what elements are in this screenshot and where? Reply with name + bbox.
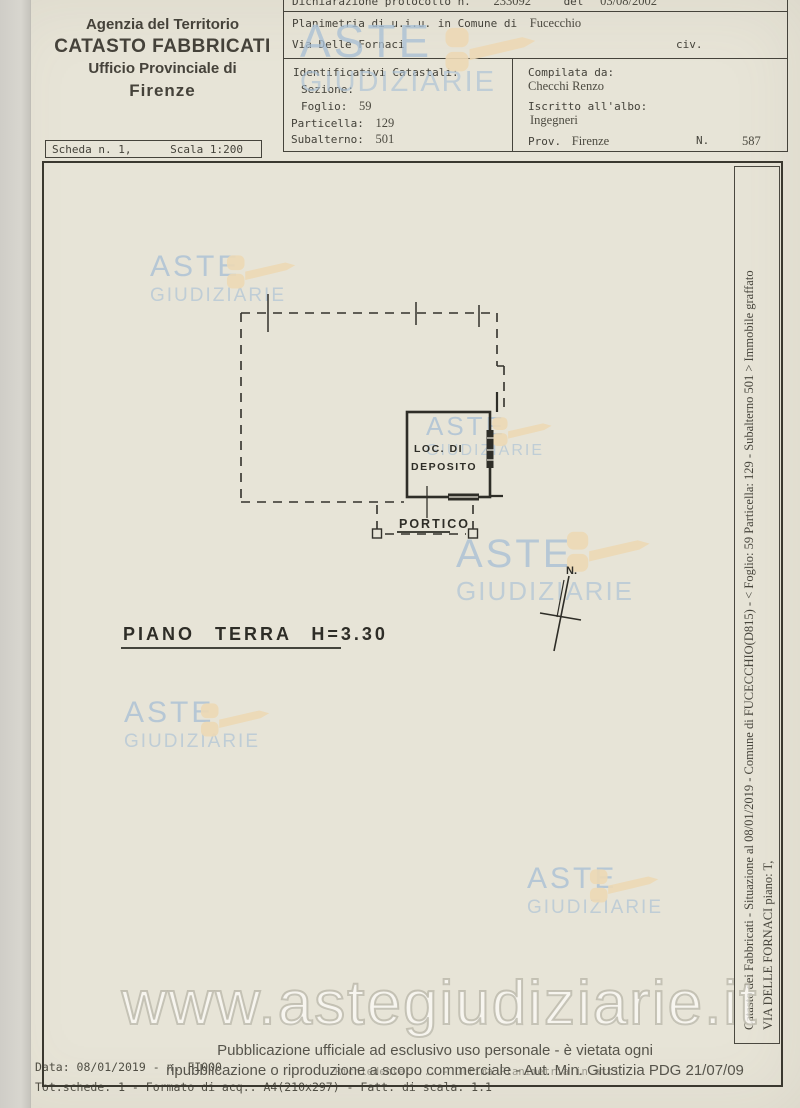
albo-label: Iscritto all'albo: (528, 100, 647, 113)
agency-line1: Agenzia del Territorio (40, 14, 285, 35)
civ-label: civ. (676, 38, 703, 51)
footer-official-line1: Pubblicazione ufficiale ad esclusivo uso… (217, 1042, 653, 1059)
compilata-title: Compilata da: (528, 66, 614, 79)
agency-line4: Firenze (40, 80, 285, 102)
particella-label: Particella: (291, 117, 364, 130)
foglio-label: Foglio: (301, 100, 347, 113)
side-note-line2: VIA DELLE FORNACI piano: T, (759, 166, 778, 1030)
room-window-bottom (448, 494, 479, 501)
declaration-label: Dichiarazione protocollo n. (292, 0, 471, 8)
portico-column-left (373, 529, 382, 538)
gavel-icon (587, 868, 659, 906)
floor-label: PIANO TERRA H=3.30 (123, 624, 388, 644)
agency-header: Agenzia del Territorio CATASTO FABBRICAT… (40, 14, 285, 102)
prov-row: Prov. Firenze (528, 134, 609, 149)
table-divider-1 (284, 11, 787, 12)
particella-value: 129 (375, 116, 394, 130)
url-watermark: www.astegiudiziarie.it (122, 968, 759, 1039)
scheda-box: Scheda n. 1, Scala 1:200 (45, 140, 262, 158)
room-label-line2: DEPOSITO (411, 461, 477, 473)
declaration-date: 03/08/2002 (600, 0, 657, 8)
agency-line3: Ufficio Provinciale di (40, 58, 285, 80)
label-underlines (121, 532, 450, 648)
gavel-icon (224, 254, 296, 292)
side-note-line1: Catasto dei Fabbricati - Situazione al 0… (740, 166, 759, 1030)
gavel-icon (564, 530, 650, 576)
gavel-icon (198, 702, 270, 740)
prov-value: Firenze (572, 134, 609, 148)
portico-label: PORTICO (399, 517, 470, 531)
n-value: 587 (742, 134, 761, 149)
foglio-value: 59 (359, 99, 372, 113)
scheda-number: Scheda n. 1, (52, 143, 131, 156)
gavel-icon (442, 26, 536, 76)
gavel-icon (490, 416, 552, 449)
floor-plan-drawing: N. LOC. DI DEPOSITO PORTICO PIANO TERRA … (0, 0, 800, 1108)
scala-value: Scala 1:200 (170, 143, 243, 156)
declaration-del: del (564, 0, 584, 8)
watermark-text-giudiziarie: GIUDIZIARIE (456, 578, 634, 604)
declaration-row: Dichiarazione protocollo n. 233092 del 0… (292, 0, 657, 9)
declaration-number: 233092 (493, 0, 531, 8)
footer-official-line2: ripubblicazione o riproduzione a scopo c… (166, 1062, 744, 1079)
agency-line2: CATASTO FABBRICATI (40, 35, 285, 58)
side-note-rotated: Catasto dei Fabbricati - Situazione al 0… (734, 166, 780, 1044)
subalterno-label: Subalterno: (291, 133, 364, 146)
comune-value: Fucecchio (530, 16, 581, 30)
n-label: N. (696, 134, 709, 147)
footer-tot-line: Tot.schede: 1 - Formato di acq.: A4(210x… (35, 1080, 492, 1094)
albo-value: Ingegneri (530, 113, 578, 128)
prov-label: Prov. (528, 135, 561, 148)
subalterno-value: 501 (375, 132, 394, 146)
scanned-cadastral-document: Agenzia del Territorio CATASTO FABBRICAT… (0, 0, 800, 1108)
foglio-row: Foglio: 59 (301, 99, 371, 114)
scan-edge-strip (0, 0, 31, 1108)
particella-row: Particella: 129 (291, 116, 394, 131)
subalterno-row: Subalterno: 501 (291, 132, 394, 147)
compilata-name: Checchi Renzo (528, 79, 604, 94)
boundary-tick-marks (268, 294, 479, 332)
